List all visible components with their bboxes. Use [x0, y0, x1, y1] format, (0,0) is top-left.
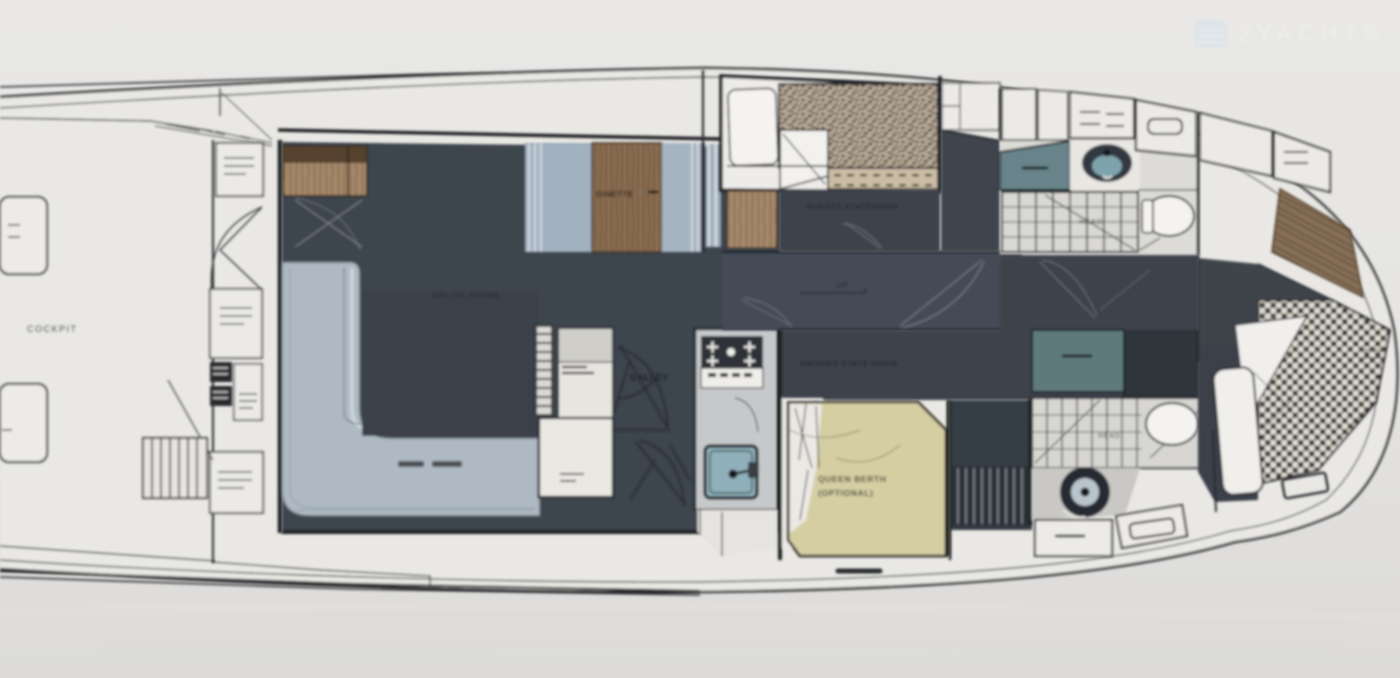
svg-text:QUEEN BERTH: QUEEN BERTH	[818, 474, 886, 484]
svg-text:SALON ROOM: SALON ROOM	[432, 290, 500, 300]
svg-text:UP: UP	[836, 281, 849, 290]
svg-text:GUESTS STATEROOM: GUESTS STATEROOM	[806, 202, 898, 211]
svg-text:COCKPIT: COCKPIT	[27, 324, 78, 334]
svg-text:DINETTE: DINETTE	[596, 190, 634, 199]
svg-text:(OPTIONAL): (OPTIONAL)	[818, 488, 874, 498]
svg-text:OWNERS STATE ROOM: OWNERS STATE ROOM	[800, 359, 898, 368]
svg-text:HEAD: HEAD	[1079, 217, 1103, 226]
svg-text:2YACHTS: 2YACHTS	[1238, 20, 1384, 46]
svg-text:HEAD: HEAD	[1098, 433, 1121, 440]
